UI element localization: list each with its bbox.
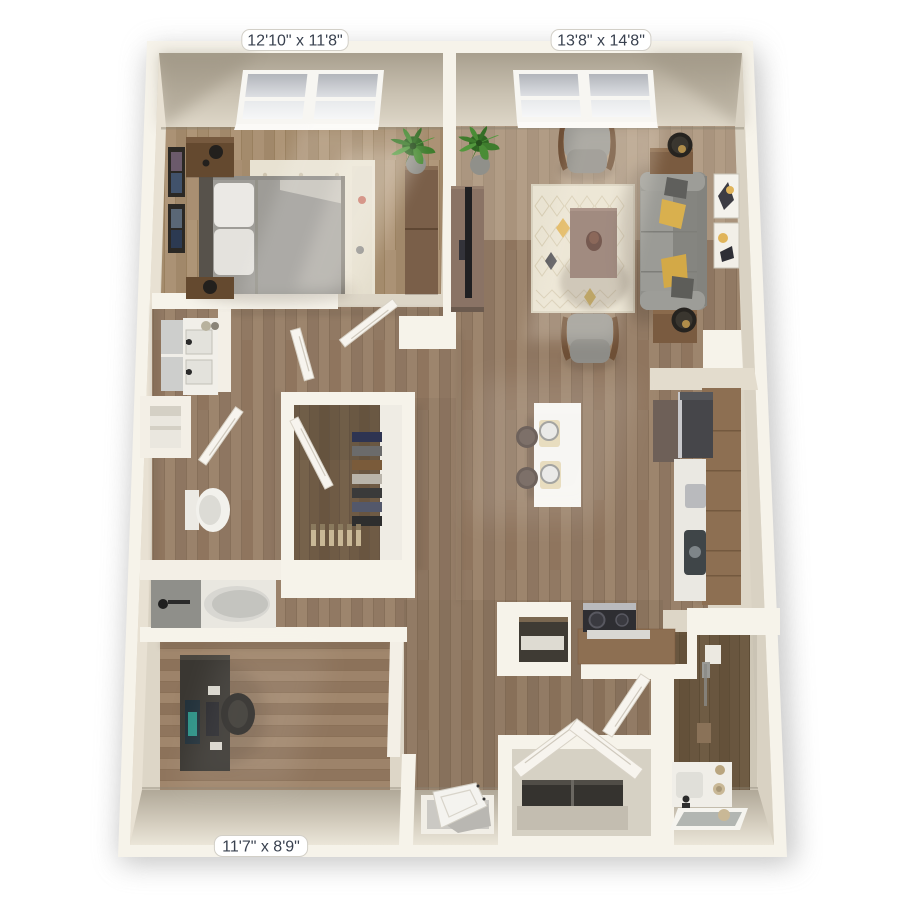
svg-text:12'10" x 11'8": 12'10" x 11'8" (247, 33, 342, 50)
svg-text:13'8" x 14'8": 13'8" x 14'8" (557, 33, 645, 50)
svg-text:11'7" x 8'9": 11'7" x 8'9" (222, 839, 300, 856)
